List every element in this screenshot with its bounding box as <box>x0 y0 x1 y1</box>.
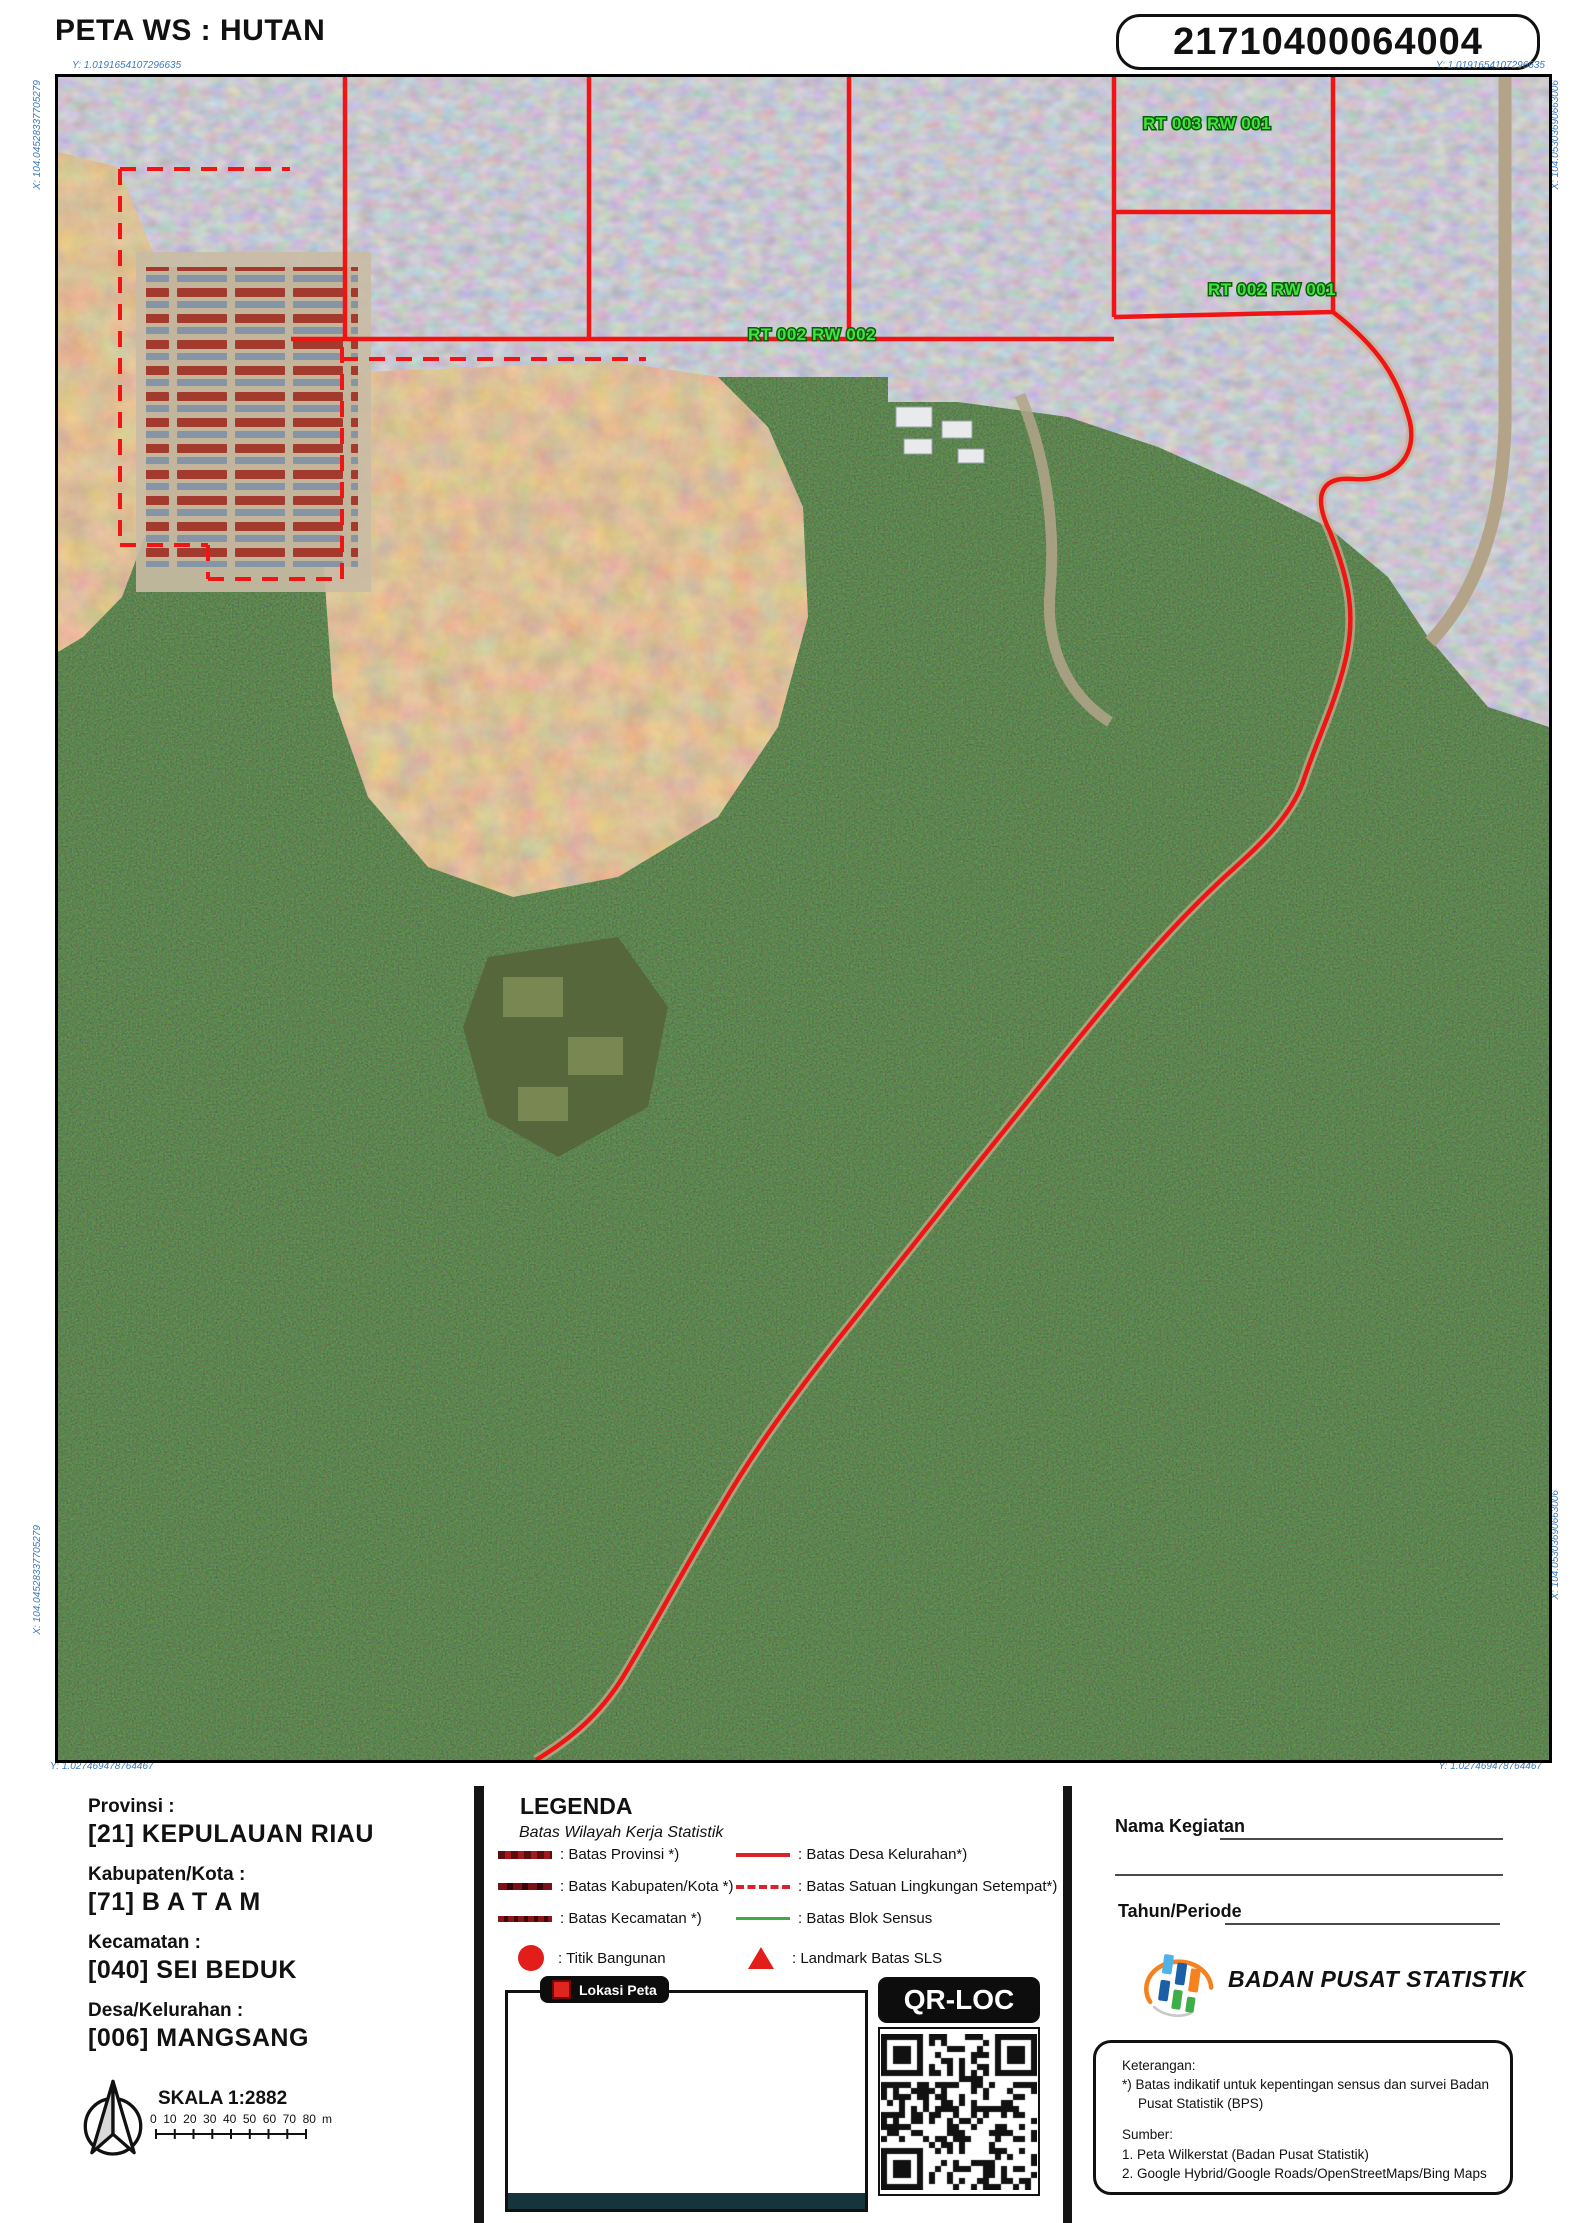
coordinate-left-top-x: X: 104.04528337705279 <box>32 80 43 190</box>
legend-title: LEGENDA <box>520 1793 632 1820</box>
agency-name: BADAN PUSAT STATISTIK <box>1228 1966 1526 1993</box>
tick-30: 30 <box>203 2112 216 2126</box>
desa-line-swatch <box>736 1853 790 1857</box>
legend-subtitle: Batas Wilayah Kerja Statistik <box>519 1824 723 1842</box>
legend-label: : Batas Provinsi *) <box>560 1846 679 1863</box>
legend-item-landmark: : Landmark Batas SLS <box>748 1947 942 1969</box>
rt-label-1: RT 003 RW 001 <box>1143 114 1271 133</box>
keterangan-line2: Pusat Statistik (BPS) <box>1122 2094 1498 2113</box>
qr-code-canvas <box>881 2034 1037 2190</box>
wilkerstat-map-sheet: PETA WS : HUTAN 21710400064004 Y: 1.0191… <box>0 0 1572 2223</box>
north-arrow-icon <box>80 2076 146 2162</box>
nama-kegiatan-line-2 <box>1115 1854 1503 1876</box>
tahun-periode-label: Tahun/Periode <box>1118 1901 1242 1922</box>
inset-map-strip <box>508 2193 865 2209</box>
nama-kegiatan-line <box>1220 1818 1503 1840</box>
provinsi-line-swatch <box>498 1851 552 1859</box>
legend-item-blok: : Batas Blok Sensus <box>736 1910 932 1927</box>
tick-80: 80 <box>303 2112 316 2126</box>
legend-label: : Batas Kabupaten/Kota *) <box>560 1878 733 1895</box>
sumber-line1: 1. Peta Wilkerstat (Badan Pusat Statisti… <box>1122 2145 1498 2164</box>
coordinate-left-bottom-x: X: 104.04528337705279 <box>32 1525 43 1635</box>
bps-logo <box>1141 1946 1219 2020</box>
tick-40: 40 <box>223 2112 236 2126</box>
legend-label: : Batas Blok Sensus <box>798 1910 932 1927</box>
tick-50: 50 <box>243 2112 256 2126</box>
divider-bar-left <box>474 1786 484 2223</box>
provinsi-label: Provinsi : <box>88 1795 374 1819</box>
blok-line-swatch <box>736 1917 790 1920</box>
scale-bar <box>155 2126 311 2140</box>
sumber-title: Sumber: <box>1122 2125 1498 2144</box>
kabupaten-label: Kabupaten/Kota : <box>88 1863 374 1887</box>
sls-line-swatch <box>736 1885 790 1889</box>
keterangan-title: Keterangan: <box>1122 2056 1498 2075</box>
building-point-icon <box>518 1945 544 1971</box>
tick-70: 70 <box>283 2112 296 2126</box>
legend-label: : Batas Desa Kelurahan*) <box>798 1846 967 1863</box>
legend-label: : Titik Bangunan <box>558 1950 666 1967</box>
rt-label-3: RT 002 RW 002 <box>748 325 876 344</box>
scale-unit: m <box>322 2112 332 2126</box>
rt-label-2: RT 002 RW 001 <box>1208 280 1336 299</box>
qr-code-box <box>878 2027 1040 2196</box>
kabupaten-value: [71] B A T A M <box>88 1887 374 1917</box>
scale-label: SKALA 1:2882 <box>158 2088 287 2110</box>
kecamatan-line-swatch <box>498 1916 552 1922</box>
desa-label: Desa/Kelurahan : <box>88 1999 374 2023</box>
inset-map-tab: Lokasi Peta <box>540 1976 669 2003</box>
map-canvas: RT 003 RW 001 RT 002 RW 001 RT 002 RW 00… <box>55 74 1552 1763</box>
lokasi-peta-marker-icon <box>552 1980 571 1999</box>
landmark-triangle-icon <box>748 1947 774 1969</box>
provinsi-value: [21] KEPULAUAN RIAU <box>88 1819 374 1849</box>
legend-item-sls: : Batas Satuan Lingkungan Setempat*) <box>736 1878 1057 1895</box>
legend-item-kabupaten: : Batas Kabupaten/Kota *) <box>498 1878 733 1895</box>
legend-label: : Landmark Batas SLS <box>792 1950 942 1967</box>
legend-item-desa: : Batas Desa Kelurahan*) <box>736 1846 967 1863</box>
coordinate-top-left: Y: 1.0191654107296635 <box>72 60 181 71</box>
legend-label: : Batas Satuan Lingkungan Setempat*) <box>798 1878 1057 1895</box>
qr-loc-header: QR-LOC <box>878 1977 1040 2023</box>
legend-item-titik-bangunan: : Titik Bangunan <box>518 1945 666 1971</box>
tick-60: 60 <box>263 2112 276 2126</box>
tick-10: 10 <box>163 2112 176 2126</box>
legend-item-provinsi: : Batas Provinsi *) <box>498 1846 679 1863</box>
keterangan-box: Keterangan: *) Batas indikatif untuk kep… <box>1093 2040 1513 2195</box>
legend-item-kecamatan: : Batas Kecamatan *) <box>498 1910 702 1927</box>
tahun-periode-line <box>1225 1903 1500 1925</box>
scale-tick-labels: 0 10 20 30 40 50 60 70 80 <box>150 2112 316 2126</box>
kabupaten-line-swatch <box>498 1883 552 1890</box>
desa-value: [006] MANGSANG <box>88 2023 374 2053</box>
housing-complex <box>146 267 358 567</box>
kecamatan-value: [040] SEI BEDUK <box>88 1955 374 1985</box>
inset-map-box <box>505 1990 868 2212</box>
kecamatan-label: Kecamatan : <box>88 1931 374 1955</box>
tick-20: 20 <box>183 2112 196 2126</box>
legend-label: : Batas Kecamatan *) <box>560 1910 702 1927</box>
divider-bar-right <box>1063 1786 1072 2223</box>
page-title: PETA WS : HUTAN <box>55 14 325 48</box>
admin-info: Provinsi : [21] KEPULAUAN RIAU Kabupaten… <box>88 1795 374 2067</box>
inset-map-label: Lokasi Peta <box>579 1982 657 1998</box>
keterangan-line1: *) Batas indikatif untuk kepentingan sen… <box>1122 2075 1498 2094</box>
map-satellite-image: RT 003 RW 001 RT 002 RW 001 RT 002 RW 00… <box>58 77 1549 1760</box>
coordinate-top-right: Y: 1.0191654107296635 <box>1436 60 1545 71</box>
tick-0: 0 <box>150 2112 157 2126</box>
sumber-line2: 2. Google Hybrid/Google Roads/OpenStreet… <box>1122 2164 1498 2183</box>
